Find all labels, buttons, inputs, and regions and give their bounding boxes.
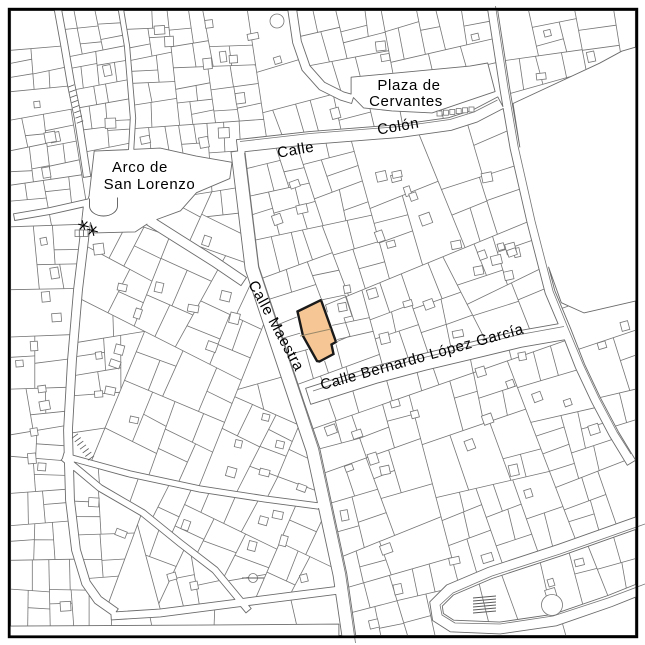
- svg-text:Plaza de: Plaza de: [377, 77, 440, 94]
- svg-text:San Lorenzo: San Lorenzo: [104, 176, 196, 193]
- svg-text:Arco de: Arco de: [112, 159, 168, 176]
- svg-text:Cervantes: Cervantes: [369, 93, 443, 110]
